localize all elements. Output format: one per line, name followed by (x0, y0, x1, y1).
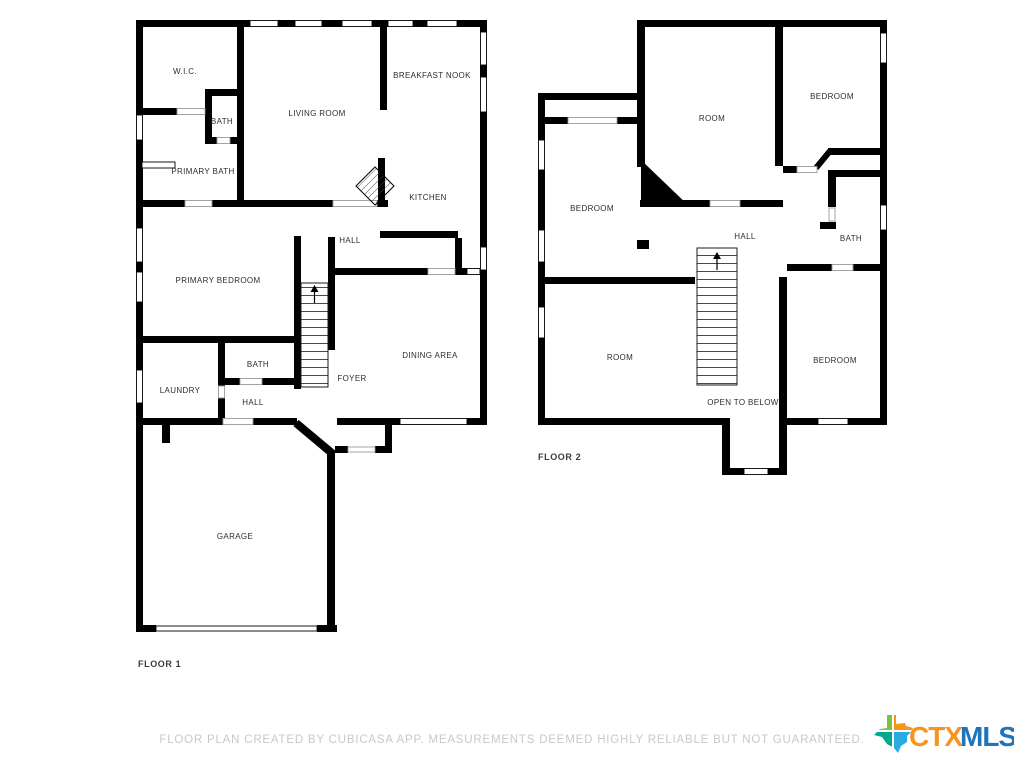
disclaimer-text: FLOOR PLAN CREATED BY CUBICASA APP. MEAS… (0, 734, 1024, 746)
floor1-title: FLOOR 1 (138, 659, 181, 669)
floor1-plan: W.I.C. BATH PRIMARY BATH LIVING ROOM BRE… (136, 20, 487, 669)
ctxmls-logo: CTX MLS (872, 712, 1014, 758)
room-label-laundry: LAUNDRY (160, 386, 201, 395)
room-label-wic: W.I.C. (173, 67, 197, 76)
floorplan-page: W.I.C. BATH PRIMARY BATH LIVING ROOM BRE… (0, 0, 1024, 768)
room-label-garage: GARAGE (217, 532, 253, 541)
room-label-bath-upper: BATH (211, 117, 233, 126)
room-label-breakfast-nook: BREAKFAST NOOK (393, 71, 471, 80)
room-label-hall-lower: HALL (242, 398, 264, 407)
texas-icon (872, 712, 914, 754)
room-label-foyer: FOYER (337, 374, 366, 383)
room-label-room-top: ROOM (699, 114, 725, 123)
room-label-primary-bath: PRIMARY BATH (171, 167, 234, 176)
floorplan-canvas: W.I.C. BATH PRIMARY BATH LIVING ROOM BRE… (0, 0, 1024, 768)
room-label-hall-upper: HALL (339, 236, 361, 245)
room-label-bedroom-left: BEDROOM (570, 204, 614, 213)
fireplace-icon (356, 167, 394, 205)
room-label-living-room: LIVING ROOM (288, 109, 345, 118)
room-label-bath-lower: BATH (247, 360, 269, 369)
room-label-dining-area: DINING AREA (402, 351, 458, 360)
logo-text-ctx: CTX (909, 721, 963, 752)
room-label-primary-bedroom: PRIMARY BEDROOM (176, 276, 261, 285)
room-label-kitchen: KITCHEN (409, 193, 447, 202)
room-label-bedroom-top-right: BEDROOM (810, 92, 854, 101)
room-label-bath: BATH (840, 234, 862, 243)
logo-text-mls: MLS (960, 721, 1014, 752)
floor2-stairs-icon (697, 248, 737, 385)
room-label-bedroom-bottom-right: BEDROOM (813, 356, 857, 365)
room-label-hall: HALL (734, 232, 756, 241)
floor2-plan: ROOM BEDROOM BEDROOM HALL BATH ROOM BEDR… (538, 20, 887, 475)
room-label-open-to-below: OPEN TO BELOW (707, 398, 778, 407)
floor1-stairs-icon (301, 283, 328, 387)
ctxmls-logo-graphic: CTX MLS (872, 712, 1014, 758)
floor2-title: FLOOR 2 (538, 452, 581, 462)
room-label-room-lower: ROOM (607, 353, 633, 362)
